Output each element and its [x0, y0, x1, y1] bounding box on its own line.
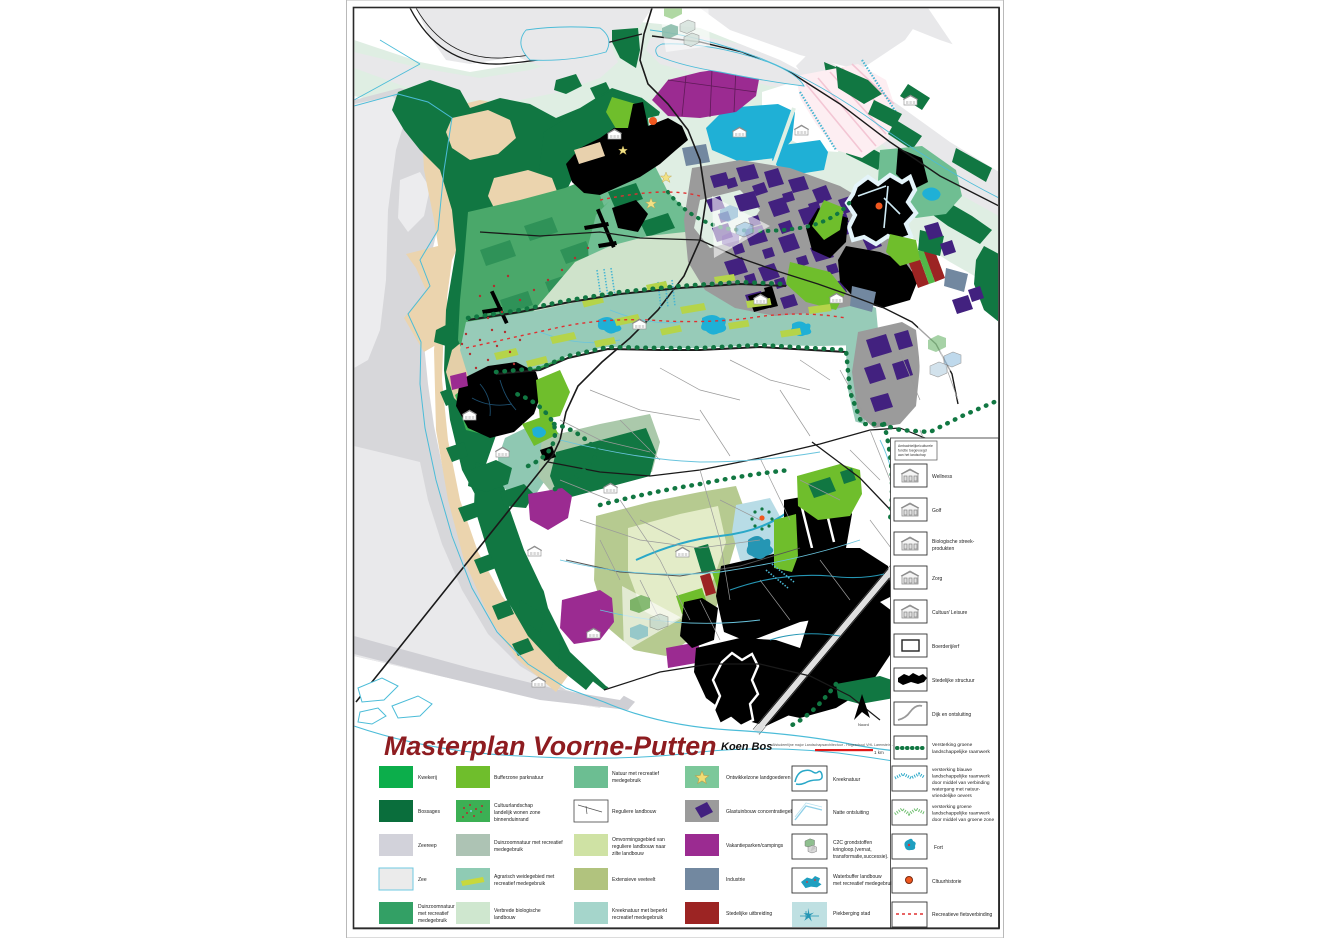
- svg-text:Ontwikkelzone landgoederen: Ontwikkelzone landgoederen: [726, 775, 791, 781]
- svg-text:Vakantieparken/campings: Vakantieparken/campings: [726, 843, 784, 849]
- svg-text:Piekberging stad: Piekberging stad: [833, 911, 870, 917]
- svg-text:Afstudeerlijne major Landschap: Afstudeerlijne major Landschapsarchitect…: [772, 743, 905, 747]
- svg-text:Cultuur/ Leisure: Cultuur/ Leisure: [932, 610, 968, 616]
- svg-text:1 km: 1 km: [874, 750, 884, 755]
- svg-text:Stedelijke uitbreiding: Stedelijke uitbreiding: [726, 911, 772, 917]
- svg-text:Kwekerij: Kwekerij: [418, 775, 437, 781]
- svg-text:Natte ontsluiting: Natte ontsluiting: [833, 810, 869, 816]
- svg-text:Zee: Zee: [418, 877, 427, 883]
- svg-text:Fort: Fort: [934, 845, 944, 851]
- svg-text:Bossages: Bossages: [418, 809, 440, 815]
- svg-text:Reguliere landbouw: Reguliere landbouw: [612, 809, 657, 815]
- svg-text:Glastuinbouw concentratiegebie: Glastuinbouw concentratiegebied: [726, 809, 800, 815]
- svg-text:Extensieve veeteelt: Extensieve veeteelt: [612, 877, 656, 883]
- svg-text:Wellness: Wellness: [932, 474, 953, 480]
- svg-text:Industrie: Industrie: [726, 877, 745, 883]
- svg-text:Recreatieve fietsverbinding: Recreatieve fietsverbinding: [932, 912, 993, 918]
- svg-text:Kreeknatuur met beperktrecreat: Kreeknatuur met beperktrecreatief medege…: [612, 908, 668, 921]
- svg-text:Zorg: Zorg: [932, 576, 943, 582]
- svg-text:Zeereep: Zeereep: [418, 843, 437, 849]
- svg-text:Koen Bos: Koen Bos: [721, 741, 772, 753]
- svg-text:Kreeknatuur: Kreeknatuur: [833, 777, 861, 783]
- svg-text:Cltuurhistorie: Cltuurhistorie: [932, 879, 962, 885]
- svg-text:Boerderij/erf: Boerderij/erf: [932, 644, 960, 650]
- svg-text:Bufferzone parknatuur: Bufferzone parknatuur: [494, 775, 544, 781]
- svg-text:Masterplan Voorne-Putten: Masterplan Voorne-Putten: [384, 731, 717, 761]
- svg-text:Stedelijke structuur: Stedelijke structuur: [932, 678, 975, 684]
- svg-text:Golf: Golf: [932, 508, 942, 514]
- svg-text:Dijk en ontsluiting: Dijk en ontsluiting: [932, 712, 971, 718]
- svg-text:Noord: Noord: [858, 722, 869, 727]
